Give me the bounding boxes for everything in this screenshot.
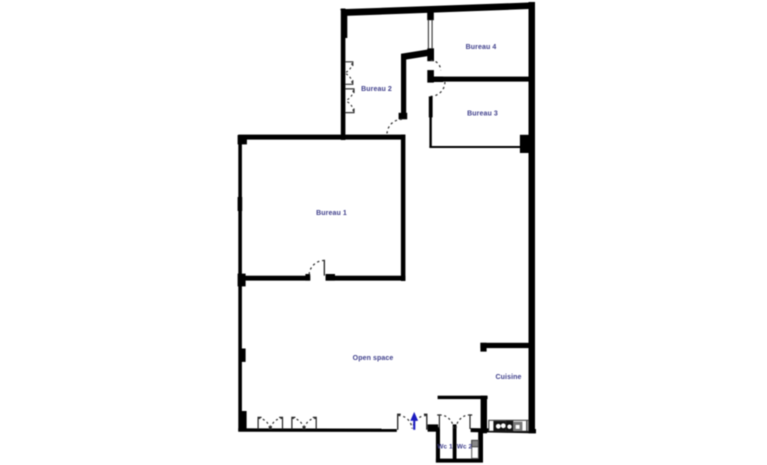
svg-text:Bureau 1: Bureau 1 xyxy=(316,210,347,217)
svg-text:Wc 1: Wc 1 xyxy=(437,444,453,451)
svg-text:Bureau 4: Bureau 4 xyxy=(466,44,497,51)
svg-text:Cuisine: Cuisine xyxy=(496,374,522,381)
svg-text:Open space: Open space xyxy=(353,355,394,362)
svg-text:Bureau 3: Bureau 3 xyxy=(467,111,498,118)
svg-text:Bureau 2: Bureau 2 xyxy=(361,86,392,93)
svg-text:Wc 2: Wc 2 xyxy=(457,444,473,451)
